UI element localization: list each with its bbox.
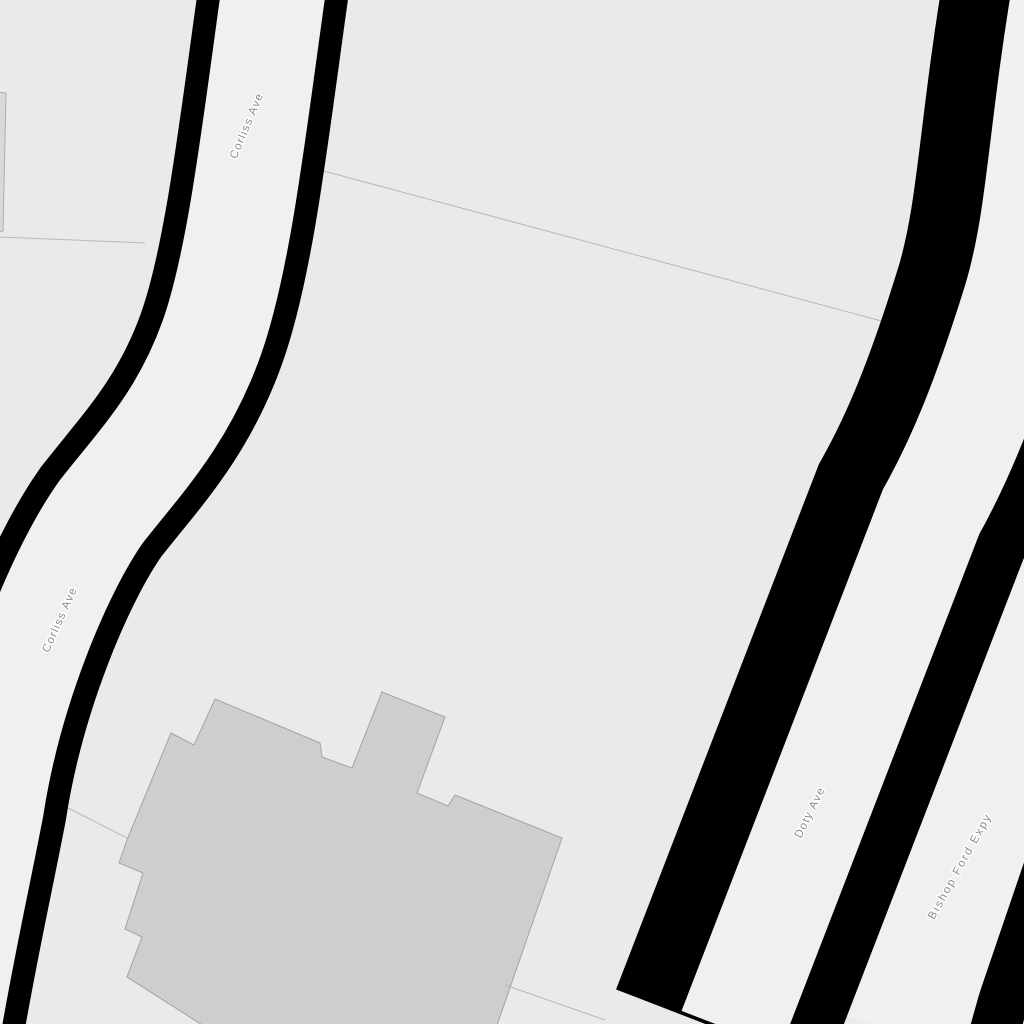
map-canvas[interactable]: Corliss AveCorliss AveDoty AveBishop For… bbox=[0, 0, 1024, 1024]
map-viewport[interactable]: Corliss AveCorliss AveDoty AveBishop For… bbox=[0, 0, 1024, 1024]
